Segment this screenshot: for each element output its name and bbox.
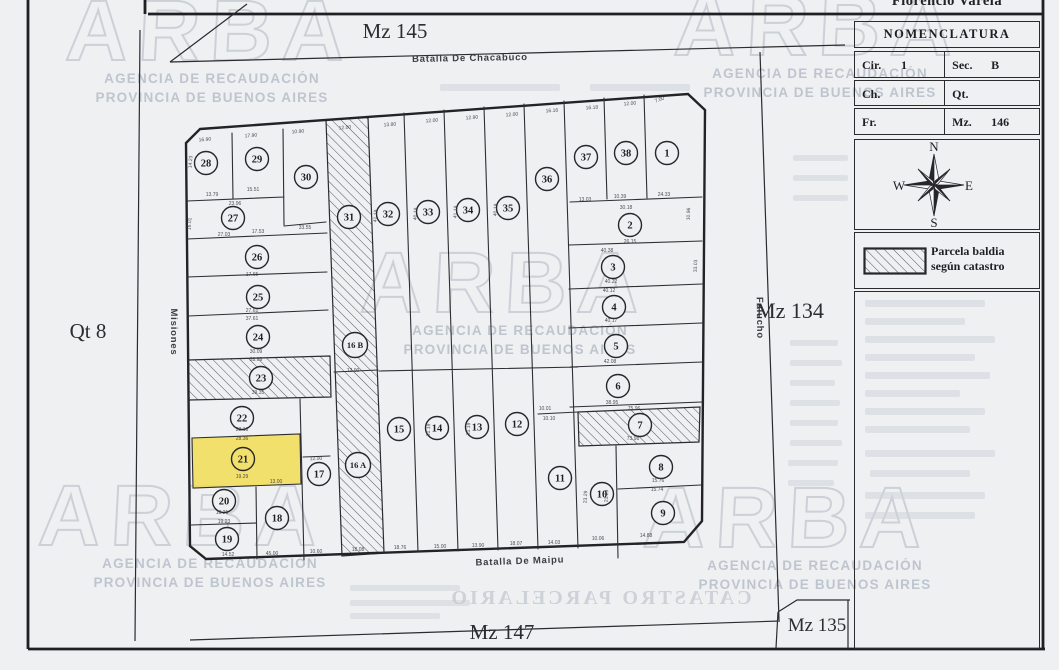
dimension-label: 12.00	[425, 118, 438, 125]
dimension-label: 23.29	[583, 490, 590, 503]
parcel-number-26: 26	[252, 253, 263, 264]
parcel-number-35: 35	[503, 204, 514, 215]
parcel-number-27: 27	[228, 214, 239, 225]
nomenclatura-row: Cir.1 Sec.B	[854, 51, 1040, 78]
legend-hatch-swatch	[863, 247, 927, 275]
parcel-number-6: 6	[615, 382, 620, 393]
dimension-label: 75.96	[628, 406, 641, 412]
parcel-number-31: 31	[344, 213, 355, 224]
parcel-number-37: 37	[581, 153, 592, 164]
dimension-label: 40.19	[493, 203, 500, 216]
compass-s: S	[930, 215, 937, 228]
nomenclatura-header: NOMENCLATURA	[854, 21, 1040, 48]
parcel-number-23: 23	[256, 374, 267, 385]
parcel-number-18: 18	[272, 514, 283, 525]
dimension-label: 15.74	[651, 487, 664, 493]
parcel-number-13: 13	[472, 423, 483, 434]
dimension-label: 12.00	[310, 456, 323, 462]
legend-box: Parcela baldia según catastro	[854, 232, 1040, 289]
dimension-label: 13.03	[579, 197, 592, 203]
dimension-label: 40.19	[413, 207, 420, 220]
nomenclatura-row: Fr. Mz.146	[854, 108, 1040, 135]
compass-e: E	[965, 178, 973, 193]
parcel-number-2: 2	[627, 221, 632, 232]
dimension-label: 41.19	[373, 209, 380, 222]
dimension-label: 16.16	[545, 108, 558, 115]
field-ch-label: Ch.	[862, 87, 880, 102]
dimension-label: 15.51	[247, 187, 260, 193]
dimension-label: 10.60	[310, 549, 323, 555]
parcel-number-3: 3	[610, 263, 615, 274]
parcel-number-9: 9	[660, 509, 665, 520]
dimension-label: 73.98	[627, 436, 640, 442]
dimension-label: 40.38	[601, 248, 614, 254]
dimension-label: 14.88	[640, 533, 653, 539]
dimension-label: 12.00	[347, 368, 360, 374]
dimension-label: 30.09	[250, 349, 263, 355]
dimension-label: 21.29	[604, 489, 611, 502]
compass-n: N	[929, 140, 939, 154]
parcel-number-12: 12	[512, 420, 523, 431]
dimension-label: 12.00	[338, 125, 351, 132]
dimension-label: 31.19	[466, 422, 473, 435]
dimension-label: 15.00	[434, 544, 447, 550]
field-fr-label: Fr.	[862, 115, 877, 130]
dimension-label: 16.01	[187, 217, 194, 230]
dimension-label: 13.79	[206, 192, 219, 198]
dimension-label: 26.15	[624, 239, 637, 245]
parcel-number-38: 38	[621, 149, 632, 160]
dimension-label: 16.18	[585, 105, 598, 112]
dimension-label: 17.53	[252, 229, 265, 235]
dimension-label: 10.01	[539, 406, 552, 412]
dimension-label: 31.19	[426, 423, 433, 436]
block-label: Qt 8	[70, 319, 107, 343]
street-label: Batalla De Chacabuco	[412, 52, 528, 65]
block-label: Mz 145	[363, 19, 428, 43]
cadastral-sheet: ARBAAGENCIA DE RECAUDACIÓNPROVINCIA DE B…	[0, 0, 1059, 670]
district-title: Florencio Varela	[854, 0, 1040, 17]
block-label: Mz 134	[756, 298, 824, 323]
parcel-number-16 A: 16 A	[350, 460, 367, 470]
block-label: Mz 147	[470, 620, 535, 644]
parcel-number-11: 11	[555, 474, 565, 485]
street-label: Batalla De Maipu	[475, 554, 564, 568]
compass-box: N S W E	[854, 139, 1040, 230]
dimension-label: 19.29	[236, 474, 249, 480]
dimension-label: 40.22	[605, 279, 618, 285]
dimension-label: 18.08	[352, 547, 365, 553]
parcel-number-25: 25	[253, 293, 264, 304]
dimension-label: 33.03	[693, 259, 699, 272]
field-sec-value: B	[991, 58, 999, 73]
dimension-label: 24.33	[658, 192, 671, 198]
parcel-number-4: 4	[611, 303, 617, 314]
dimension-label: 14.23	[188, 155, 195, 168]
dimension-label: 28.16	[236, 427, 249, 433]
dimension-label: 13.80	[383, 122, 396, 129]
dimension-label: 17.65	[246, 272, 259, 278]
field-cir-value: 1	[901, 58, 907, 73]
parcel-number-29: 29	[252, 155, 263, 166]
parcel-number-32: 32	[383, 210, 394, 221]
parcel-number-16 B: 16 B	[347, 340, 364, 350]
compass-w: W	[893, 178, 906, 193]
parcel-number-5: 5	[613, 342, 618, 353]
field-sec-label: Sec.	[952, 58, 972, 73]
dimension-label: 40.12	[603, 288, 616, 294]
field-cir-label: Cir.	[862, 58, 881, 73]
field-qt-label: Qt.	[952, 87, 968, 102]
field-mz-label: Mz.	[952, 115, 972, 130]
compass-rose: N S W E	[855, 140, 1038, 228]
dimension-label: 18.21	[216, 510, 229, 516]
dimension-label: 14.03	[548, 540, 561, 546]
parcel-number-33: 33	[423, 208, 434, 219]
field-mz-value: 146	[991, 115, 1009, 130]
dimension-label: 28.09	[250, 357, 263, 363]
block-label: Mz 135	[788, 615, 847, 636]
dimension-label: 12.90	[465, 115, 478, 122]
dimension-label: 18.76	[394, 545, 407, 551]
dimension-label: 40.17	[605, 318, 618, 324]
dimension-label: 39.35	[252, 390, 265, 396]
dimension-label: 42.08	[604, 359, 617, 365]
dimension-label: 16.90	[198, 137, 211, 144]
dimension-label: 18.07	[510, 541, 523, 547]
dimension-label: 13.00	[270, 479, 283, 485]
dimension-label: 12.00	[505, 112, 518, 119]
dimension-label: 19.23	[218, 519, 231, 525]
dimension-label: 10.90	[291, 129, 304, 136]
legend-label: Parcela baldia según catastro	[931, 244, 1004, 273]
dimension-label: 27.61	[246, 308, 259, 314]
dimension-label: 10.39	[614, 194, 627, 200]
dimension-label: 23.96	[229, 201, 242, 207]
dimension-label: 41.19	[453, 205, 460, 218]
parcel-number-17: 17	[314, 470, 325, 481]
street-label: Misiones	[168, 308, 179, 355]
parcel-number-21: 21	[238, 455, 249, 466]
dimension-label: 12.00	[623, 101, 636, 108]
dimension-label: 45.00	[266, 551, 279, 557]
dimension-label: 37.61	[246, 316, 259, 322]
parcel-number-34: 34	[463, 206, 474, 217]
parcel-number-14: 14	[432, 424, 443, 435]
dimension-label: 10.06	[592, 536, 605, 542]
dimension-label: 10.96	[686, 207, 692, 220]
parcel-number-15: 15	[394, 425, 405, 436]
parcel-number-8: 8	[658, 463, 663, 474]
nomenclatura-row: Ch. Qt.	[854, 80, 1040, 106]
panel-empty-box	[854, 291, 1040, 649]
parcel-number-20: 20	[219, 497, 230, 508]
parcel-number-36: 36	[542, 175, 553, 186]
parcel-number-24: 24	[253, 333, 264, 344]
parcel-number-19: 19	[222, 535, 233, 546]
dimension-label: 10.10	[543, 416, 556, 422]
dimension-label: 15.76	[652, 478, 665, 484]
dimension-label: 27.03	[218, 232, 231, 238]
dimension-label: 30.18	[620, 205, 633, 211]
parcel-number-22: 22	[237, 414, 248, 425]
dimension-label: 38.95	[606, 400, 619, 406]
dimension-label: 14.52	[222, 552, 235, 558]
dimension-label: 28.36	[236, 436, 249, 442]
boundary-lines	[135, 4, 850, 649]
parcel-number-28: 28	[201, 159, 212, 170]
dimension-label: 13.90	[472, 543, 485, 549]
dimension-label: 17.90	[244, 133, 257, 140]
dimension-label: 33.55	[299, 225, 312, 231]
parcel-number-1: 1	[664, 149, 669, 160]
parcel-number-30: 30	[301, 173, 312, 184]
parcel-number-7: 7	[637, 421, 642, 432]
